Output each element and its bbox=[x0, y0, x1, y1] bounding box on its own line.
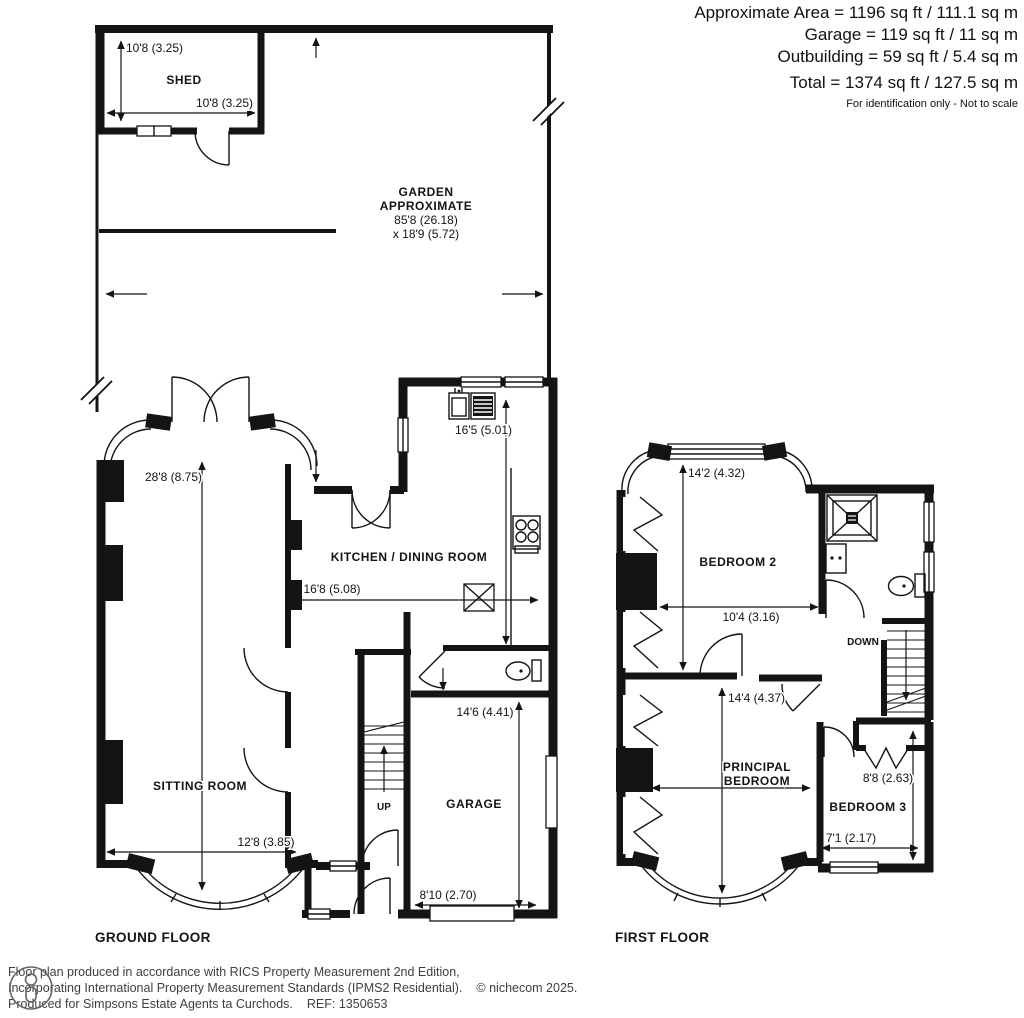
bed2-dim-v: 14'2 (4.32) bbox=[688, 466, 745, 480]
kitchen-dim-v: 16'5 (5.01) bbox=[455, 423, 512, 437]
outbuilding-area: Outbuilding = 59 sq ft / 5.4 sq m bbox=[694, 46, 1018, 68]
area-summary: Approximate Area = 1196 sq ft / 111.1 sq… bbox=[694, 2, 1018, 110]
approximate-area: Approximate Area = 1196 sq ft / 111.1 sq… bbox=[694, 2, 1018, 24]
garage-dim-v: 14'6 (4.41) bbox=[457, 705, 514, 719]
identification-note: For identification only - Not to scale bbox=[694, 98, 1018, 110]
wc bbox=[411, 648, 553, 694]
stairs-up-label: UP bbox=[377, 802, 391, 813]
disclaimer-line-3: Produced for Simpsons Estate Agents ta C… bbox=[8, 996, 577, 1012]
sitting-label: SITTING ROOM bbox=[153, 779, 247, 793]
first-floor-plan bbox=[616, 442, 934, 907]
kitchen-dim-h: 16'8 (5.08) bbox=[304, 582, 361, 596]
basin-icon bbox=[826, 544, 846, 573]
kitchen-sink-icon bbox=[449, 388, 469, 419]
shed-label: SHED bbox=[166, 73, 201, 87]
principal-label-1: PRINCIPAL bbox=[723, 760, 791, 774]
shed-door bbox=[195, 131, 229, 165]
shed-window bbox=[137, 126, 171, 136]
entrance-porch bbox=[302, 830, 398, 919]
sitting-dim-h: 12'8 (3.85) bbox=[238, 835, 295, 849]
disclaimer-line-1: Floor plan produced in accordance with R… bbox=[8, 964, 577, 980]
garage-door bbox=[430, 906, 514, 921]
disclaimer: Floor plan produced in accordance with R… bbox=[8, 962, 577, 1012]
copyright: © nichecom 2025. bbox=[476, 980, 577, 996]
sitting-bay-window bbox=[125, 853, 314, 910]
toilet-icon bbox=[506, 660, 541, 681]
sitting-dim-v: 28'8 (8.75) bbox=[145, 470, 202, 484]
disclaimer-line-2: Incorporating International Property Mea… bbox=[8, 980, 577, 996]
bed3-dormer bbox=[856, 721, 929, 768]
bed3-dim-h: 7'1 (2.17) bbox=[826, 831, 876, 845]
hob-icon bbox=[513, 516, 540, 553]
oven-icon bbox=[471, 393, 495, 419]
floorplan-canvas: 10'8 (3.25) SHED 10'8 (3.25) GARDEN APPR… bbox=[0, 0, 1024, 1018]
garage-area: Garage = 119 sq ft / 11 sq m bbox=[694, 24, 1018, 46]
reference-number: REF: 1350653 bbox=[307, 996, 388, 1012]
ground-floor-title: GROUND FLOOR bbox=[95, 930, 211, 945]
bed3-dim-v: 8'8 (2.63) bbox=[863, 771, 913, 785]
stairs-up bbox=[364, 722, 404, 792]
garage-side-door bbox=[546, 756, 557, 828]
principal-dim-v: 14'4 (4.37) bbox=[728, 691, 785, 705]
garden-subtitle: APPROXIMATE bbox=[380, 199, 473, 213]
shed-dim-vertical: 10'8 (3.25) bbox=[126, 41, 183, 55]
rooflight-icon bbox=[464, 584, 494, 611]
garden-width: x 18'9 (5.72) bbox=[393, 227, 459, 241]
first-floor-title: FIRST FLOOR bbox=[615, 930, 709, 945]
shower-icon bbox=[827, 495, 877, 541]
garage-dim-h: 8'10 (2.70) bbox=[420, 888, 477, 902]
disclaimer-text: Floor plan produced in accordance with R… bbox=[8, 962, 577, 1012]
plan-labels: 10'8 (3.25) SHED 10'8 (3.25) GARDEN APPR… bbox=[95, 41, 913, 945]
bed2-dim-h: 10'4 (3.16) bbox=[723, 610, 780, 624]
garage-label: GARAGE bbox=[446, 797, 502, 811]
garden-title: GARDEN bbox=[398, 185, 453, 199]
total-area: Total = 1374 sq ft / 127.5 sq m bbox=[694, 72, 1018, 94]
kitchen-label: KITCHEN / DINING ROOM bbox=[331, 550, 488, 564]
rear-double-door bbox=[352, 490, 390, 528]
french-doors-bay bbox=[104, 377, 317, 470]
shed-dim-horizontal: 10'8 (3.25) bbox=[196, 96, 253, 110]
principal-bay-window bbox=[617, 851, 822, 907]
person-measure-icon bbox=[8, 962, 54, 1012]
garden-length: 85'8 (26.18) bbox=[394, 213, 458, 227]
bed2-label: BEDROOM 2 bbox=[699, 555, 776, 569]
stairs-down-label: DOWN bbox=[847, 637, 879, 648]
toilet-first-floor-icon bbox=[889, 574, 926, 597]
ground-floor-plan bbox=[97, 377, 557, 921]
bed3-label: BEDROOM 3 bbox=[829, 800, 906, 814]
stairs-down bbox=[887, 630, 926, 712]
principal-label-2: BEDROOM bbox=[724, 774, 790, 788]
